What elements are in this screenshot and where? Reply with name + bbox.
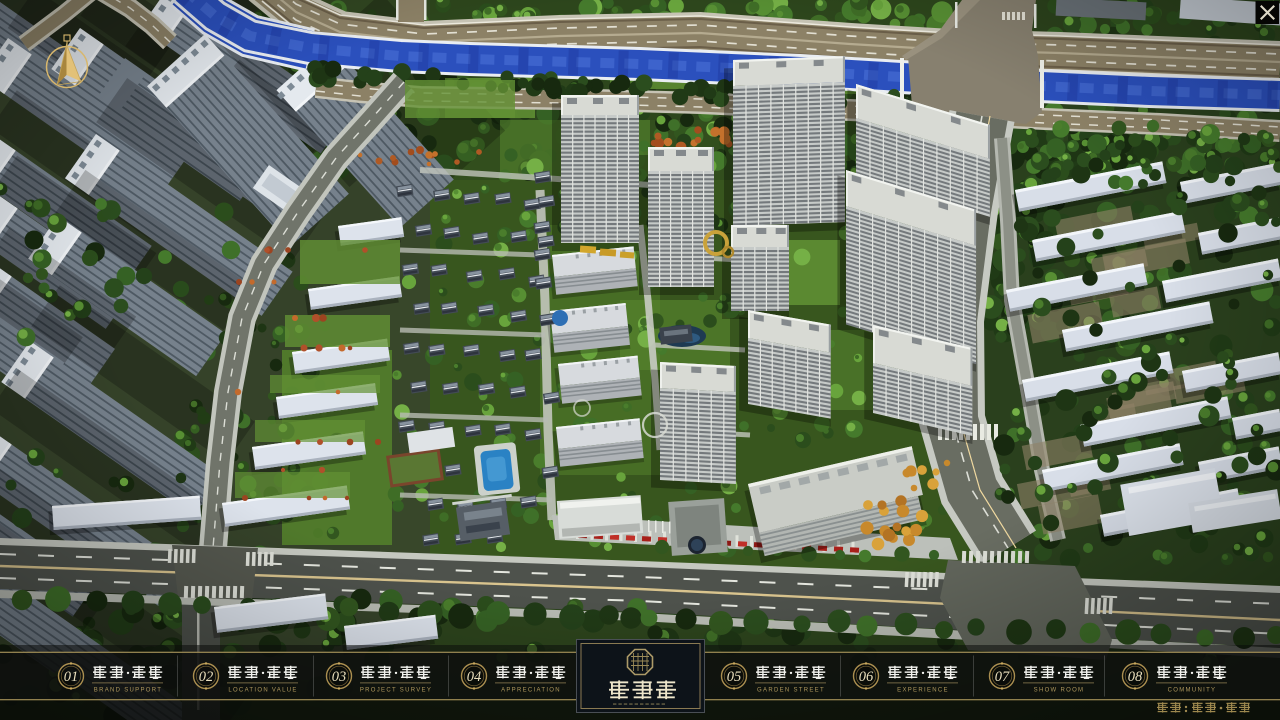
svg-text:COMMUNITY: COMMUNITY: [1168, 688, 1217, 694]
svg-text:BRAND SUPPORT: BRAND SUPPORT: [94, 688, 162, 694]
svg-text:06: 06: [859, 669, 874, 685]
svg-text:EXPERIENCE: EXPERIENCE: [897, 688, 949, 694]
svg-text:APPRECIATION: APPRECIATION: [501, 688, 561, 694]
svg-text:07: 07: [995, 669, 1010, 685]
svg-text:04: 04: [467, 669, 482, 685]
svg-text:01: 01: [64, 669, 79, 685]
svg-text:08: 08: [1128, 669, 1143, 685]
svg-text:02: 02: [199, 669, 214, 685]
svg-text:PROJECT SURVEY: PROJECT SURVEY: [360, 688, 432, 694]
svg-text:05: 05: [727, 669, 742, 685]
svg-text:LOCATION VALUE: LOCATION VALUE: [228, 688, 297, 694]
svg-text:GARDEN STREET: GARDEN STREET: [757, 688, 825, 694]
svg-text:03: 03: [332, 669, 347, 685]
svg-text:SHOW ROOM: SHOW ROOM: [1034, 688, 1085, 694]
